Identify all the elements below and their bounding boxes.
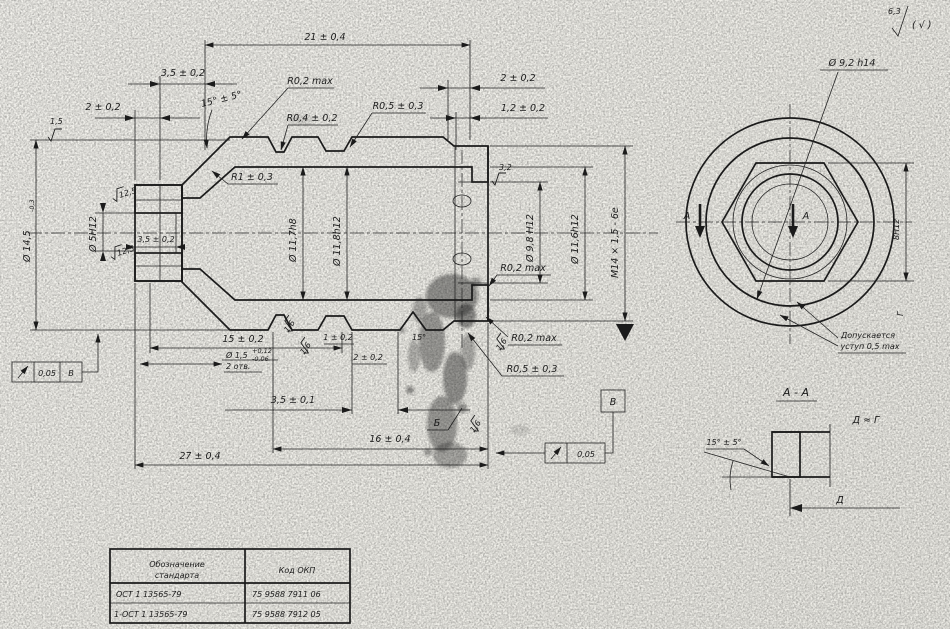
equal-dg-label: Д ≈ Г [852, 415, 880, 426]
table-header-std-line2: стандарта [155, 571, 199, 580]
dia-92-label: Ø 9,2 h14 [828, 58, 876, 69]
dia-98-label: Ø 9,8 H12 [525, 214, 536, 263]
runout-left-datum: В [68, 369, 74, 378]
hole-dia-label: Ø 1,5 [225, 350, 248, 360]
section-label-a-right: А [802, 211, 810, 222]
dia-145-tol: -0,3 [28, 199, 36, 212]
r02-top-label: R0,2 max [287, 76, 333, 87]
table-header-okp: Код ОКП [279, 566, 316, 575]
dim-21-label: 21 ± 0,4 [304, 32, 345, 43]
table-row2-okp: 75 9588 7912 05 [252, 610, 321, 619]
r05-top-label: R0,5 ± 0,3 [373, 101, 424, 112]
dim-15-label: 15 ± 0,2 [222, 334, 263, 345]
dia-145-label: Ø 14,5 [22, 230, 33, 263]
table-row2-std: 1-ОСТ 1 13565-79 [114, 610, 187, 619]
rough-32-label: 3,2 [499, 163, 512, 172]
dia-118-label: Ø 11,8h12 [332, 216, 343, 267]
runout-right-value: 0,05 [577, 450, 595, 459]
drawing-canvas: 21 ± 0,4 3,5 ± 0,2 2 ± 0,2 2 ± 0,2 1,2 ±… [0, 0, 950, 629]
dim-1-label: 1 ± 0,2 [323, 333, 353, 342]
general-roughness-alt: ( √ ) [912, 20, 932, 31]
hole-dia-up: +0,12 [252, 347, 272, 355]
section-aa-title: А - А [782, 386, 809, 399]
table-header-std-line1: Обозначение [149, 560, 205, 569]
r1-label: R1 ± 0,3 [231, 172, 273, 183]
thread-label: M14 × 1,5 - 6e [610, 207, 621, 278]
step-note-line1: Допускается [840, 331, 895, 340]
dim-35-01-label: 3,5 ± 0,1 [271, 395, 315, 406]
label-g: Г [896, 311, 905, 316]
dim-16-label: 16 ± 0,4 [369, 434, 410, 445]
r02-bottom-label: R0,2 max [511, 333, 557, 344]
r05-bottom-label: R0,5 ± 0,3 [507, 364, 558, 375]
dim-27-label: 27 ± 0,4 [179, 451, 220, 462]
dia-117-label: Ø 11,7h8 [288, 218, 299, 263]
dia-116-label: Ø 11,6h12 [570, 214, 581, 265]
rough-15-label: 1,5 [50, 117, 63, 126]
drawing-sheet: 21 ± 0,4 3,5 ± 0,2 2 ± 0,2 2 ± 0,2 1,2 ±… [0, 0, 950, 629]
runout-left-value: 0,05 [38, 369, 56, 378]
dim-35-bore-label: 3,5 ± 0,2 [137, 235, 174, 244]
table-row1-okp: 75 9588 7911 06 [252, 590, 321, 599]
general-roughness-value: 6,3 [888, 7, 901, 16]
step-note-line2: уступ 0,5 max [840, 342, 900, 351]
dim-8h12-label: 8H12 [892, 219, 901, 240]
hole-dia-dn: -0,06 [252, 355, 269, 363]
table-row1-std: ОСТ 1 13565-79 [116, 590, 181, 599]
dim-35-top-label: 3,5 ± 0,2 [161, 68, 205, 79]
section-label-a-left: А [683, 211, 691, 222]
dim-2-right-label: 2 ± 0,2 [500, 73, 535, 84]
r02-right-label: R0,2 max [500, 263, 546, 274]
section-aa-angle-label: 15° ± 5° [706, 438, 741, 447]
hole-note-label: 2 отв. [226, 362, 250, 371]
datum-v-label: В [610, 397, 617, 408]
dim-d-label: Д [835, 495, 843, 506]
dim-2-left-label: 2 ± 0,2 [85, 102, 120, 113]
dim-2-groove-label: 2 ± 0,2 [353, 353, 383, 362]
dia-5-label: Ø 5H12 [88, 216, 99, 253]
dim-12-label: 1,2 ± 0,2 [501, 103, 545, 114]
